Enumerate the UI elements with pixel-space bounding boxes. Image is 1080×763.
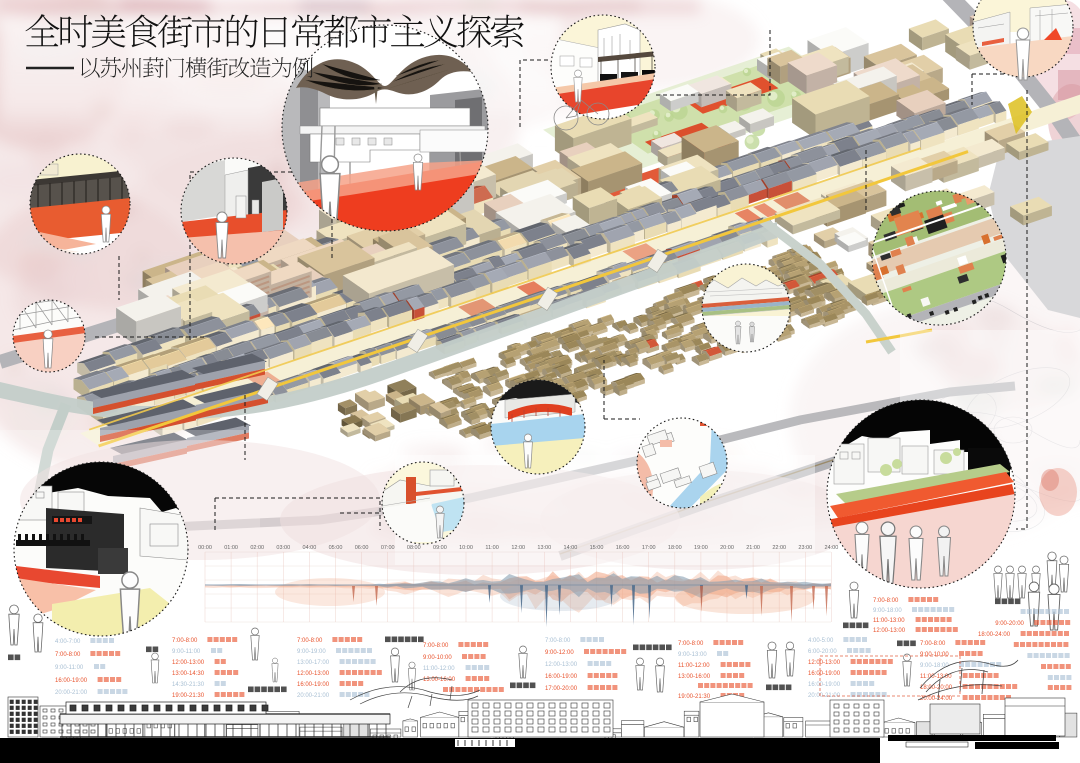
svg-text:23:00: 23:00 — [798, 545, 812, 551]
svg-text:9:00-10:00: 9:00-10:00 — [920, 652, 949, 658]
svg-text:4:00-5:00: 4:00-5:00 — [808, 638, 834, 644]
svg-text:7:00-8:00: 7:00-8:00 — [873, 598, 899, 604]
svg-text:13:00-16:00: 13:00-16:00 — [678, 674, 711, 680]
svg-text:24:00: 24:00 — [825, 545, 839, 551]
svg-text:12:00-13:00: 12:00-13:00 — [297, 671, 330, 677]
svg-text:6:00-20:00: 6:00-20:00 — [808, 649, 837, 655]
svg-text:22:00: 22:00 — [772, 545, 786, 551]
svg-text:16:00-19:00: 16:00-19:00 — [297, 682, 330, 688]
svg-text:20:00: 20:00 — [720, 545, 734, 551]
svg-text:17:00: 17:00 — [642, 545, 656, 551]
svg-text:07:00: 07:00 — [381, 545, 395, 551]
svg-text:9:00-18:00: 9:00-18:00 — [873, 608, 902, 614]
svg-text:9:00-12:00: 9:00-12:00 — [545, 650, 574, 656]
svg-text:09:00: 09:00 — [433, 545, 447, 551]
svg-text:7:00-8:00: 7:00-8:00 — [172, 638, 198, 644]
svg-text:7:00-8:00: 7:00-8:00 — [55, 652, 81, 658]
svg-text:13:00-14:30: 13:00-14:30 — [172, 671, 205, 677]
svg-text:7:00-8:00: 7:00-8:00 — [678, 641, 704, 647]
svg-text:21:00: 21:00 — [746, 545, 760, 551]
svg-text:12:00-13:00: 12:00-13:00 — [545, 662, 578, 668]
svg-text:9:00-11:00: 9:00-11:00 — [55, 665, 84, 671]
svg-text:06:00: 06:00 — [355, 545, 369, 551]
svg-text:15:00: 15:00 — [590, 545, 604, 551]
svg-text:02:00: 02:00 — [250, 545, 264, 551]
svg-text:08:00: 08:00 — [407, 545, 421, 551]
svg-text:17:00-20:00: 17:00-20:00 — [545, 686, 578, 692]
svg-text:13:00-17:00: 13:00-17:00 — [297, 660, 330, 666]
svg-text:14:30-21:30: 14:30-21:30 — [172, 682, 205, 688]
svg-text:4:00-7:00: 4:00-7:00 — [55, 639, 81, 645]
svg-text:7:00-8:00: 7:00-8:00 — [545, 638, 571, 644]
svg-text:00:00: 00:00 — [198, 545, 212, 551]
svg-text:12:00-13:00: 12:00-13:00 — [172, 660, 205, 666]
svg-text:7:00-8:00: 7:00-8:00 — [423, 643, 449, 649]
svg-text:16:00-19:00: 16:00-19:00 — [545, 674, 578, 680]
svg-text:19:00: 19:00 — [694, 545, 708, 551]
svg-text:16:00: 16:00 — [616, 545, 630, 551]
svg-text:18:00-24:00: 18:00-24:00 — [978, 632, 1011, 638]
svg-text:16:00-19:00: 16:00-19:00 — [808, 682, 841, 688]
svg-text:16:00-19:00: 16:00-19:00 — [808, 671, 841, 677]
svg-text:9:00-13:00: 9:00-13:00 — [678, 652, 707, 658]
svg-text:11:00: 11:00 — [485, 545, 498, 551]
svg-text:13:00: 13:00 — [537, 545, 551, 551]
svg-text:10:00: 10:00 — [459, 545, 473, 551]
svg-text:03:00: 03:00 — [276, 545, 290, 551]
svg-text:12:00: 12:00 — [511, 545, 525, 551]
svg-text:19:00-21:30: 19:00-21:30 — [678, 694, 711, 700]
svg-text:04:00: 04:00 — [303, 545, 317, 551]
svg-text:18:00: 18:00 — [668, 545, 682, 551]
svg-text:7:00-8:00: 7:00-8:00 — [297, 638, 323, 644]
svg-text:12:00-13:00: 12:00-13:00 — [873, 628, 906, 634]
svg-text:7:00-8:00: 7:00-8:00 — [920, 641, 946, 647]
svg-text:9:00-19:00: 9:00-19:00 — [297, 649, 326, 655]
svg-text:9:00-11:00: 9:00-11:00 — [172, 649, 201, 655]
svg-text:05:00: 05:00 — [329, 545, 343, 551]
svg-text:20:00-21:00: 20:00-21:00 — [55, 690, 88, 696]
svg-text:19:00-21:30: 19:00-21:30 — [172, 693, 205, 699]
svg-text:01:00: 01:00 — [224, 545, 238, 551]
svg-text:11:00-12:00: 11:00-12:00 — [423, 666, 455, 672]
svg-text:11:00-12:00: 11:00-12:00 — [678, 663, 710, 669]
svg-text:9:00-10:00: 9:00-10:00 — [423, 655, 452, 661]
svg-text:9:00-18:00: 9:00-18:00 — [920, 663, 949, 669]
svg-text:11:00-13:00: 11:00-13:00 — [873, 618, 905, 624]
svg-text:14:00: 14:00 — [564, 545, 578, 551]
svg-text:18:00-20:00: 18:00-20:00 — [920, 685, 953, 691]
svg-text:20:00-21:00: 20:00-21:00 — [297, 693, 330, 699]
svg-text:9:00-20:00: 9:00-20:00 — [995, 621, 1024, 627]
svg-text:12:00-13:00: 12:00-13:00 — [808, 660, 841, 666]
svg-text:16:00-19:00: 16:00-19:00 — [55, 678, 88, 684]
